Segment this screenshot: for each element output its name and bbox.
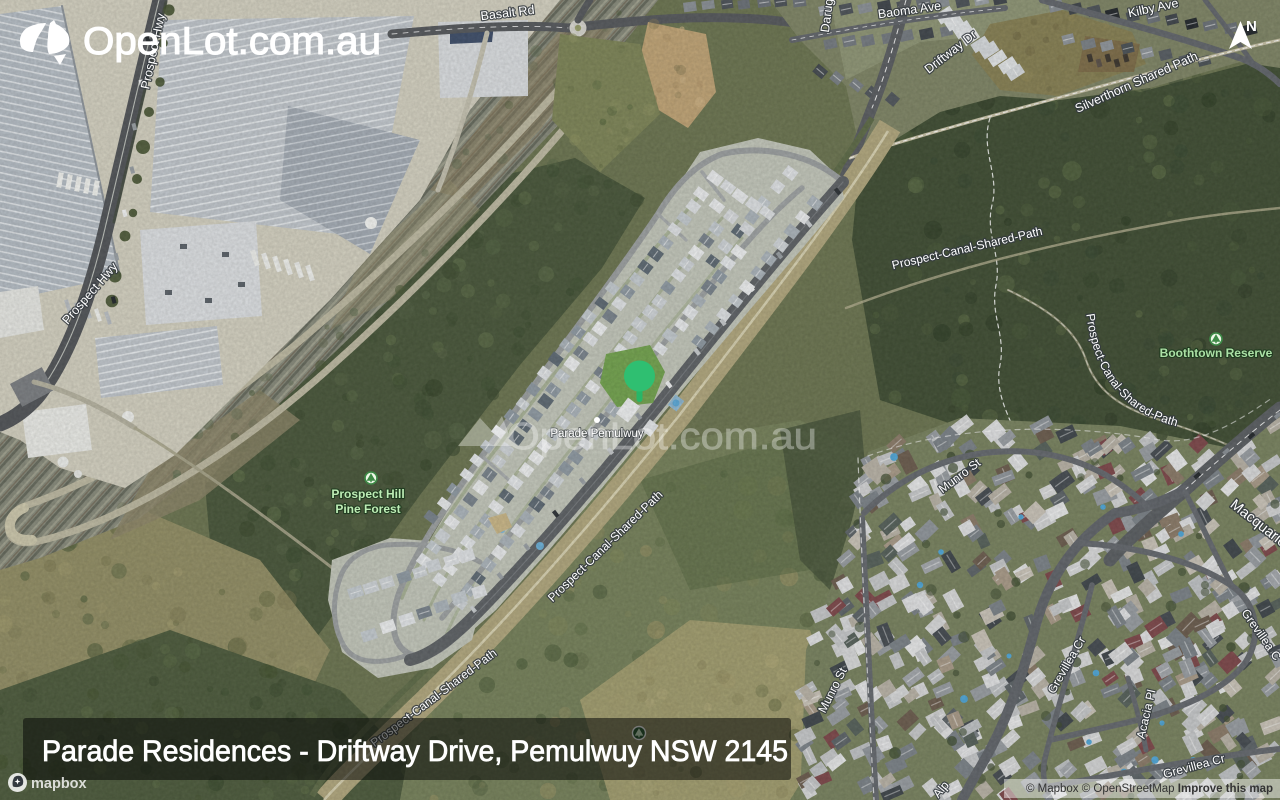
svg-text:N: N	[1246, 18, 1257, 35]
svg-text:© Mapbox © OpenStreetMap Impro: © Mapbox © OpenStreetMap Improve this ma…	[1026, 783, 1273, 795]
svg-text:Boothtown Reserve: Boothtown Reserve	[1160, 346, 1273, 360]
svg-text:Prospect Hill: Prospect Hill	[331, 487, 404, 501]
svg-text:Parade Residences - Driftway D: Parade Residences - Driftway Drive, Pemu…	[42, 735, 788, 768]
svg-text:OpenLot.com.au: OpenLot.com.au	[507, 416, 817, 458]
svg-text:mapbox: mapbox	[31, 776, 87, 792]
svg-text:OpenLot.com.au: OpenLot.com.au	[83, 20, 381, 63]
svg-text:Pine Forest: Pine Forest	[335, 502, 400, 516]
